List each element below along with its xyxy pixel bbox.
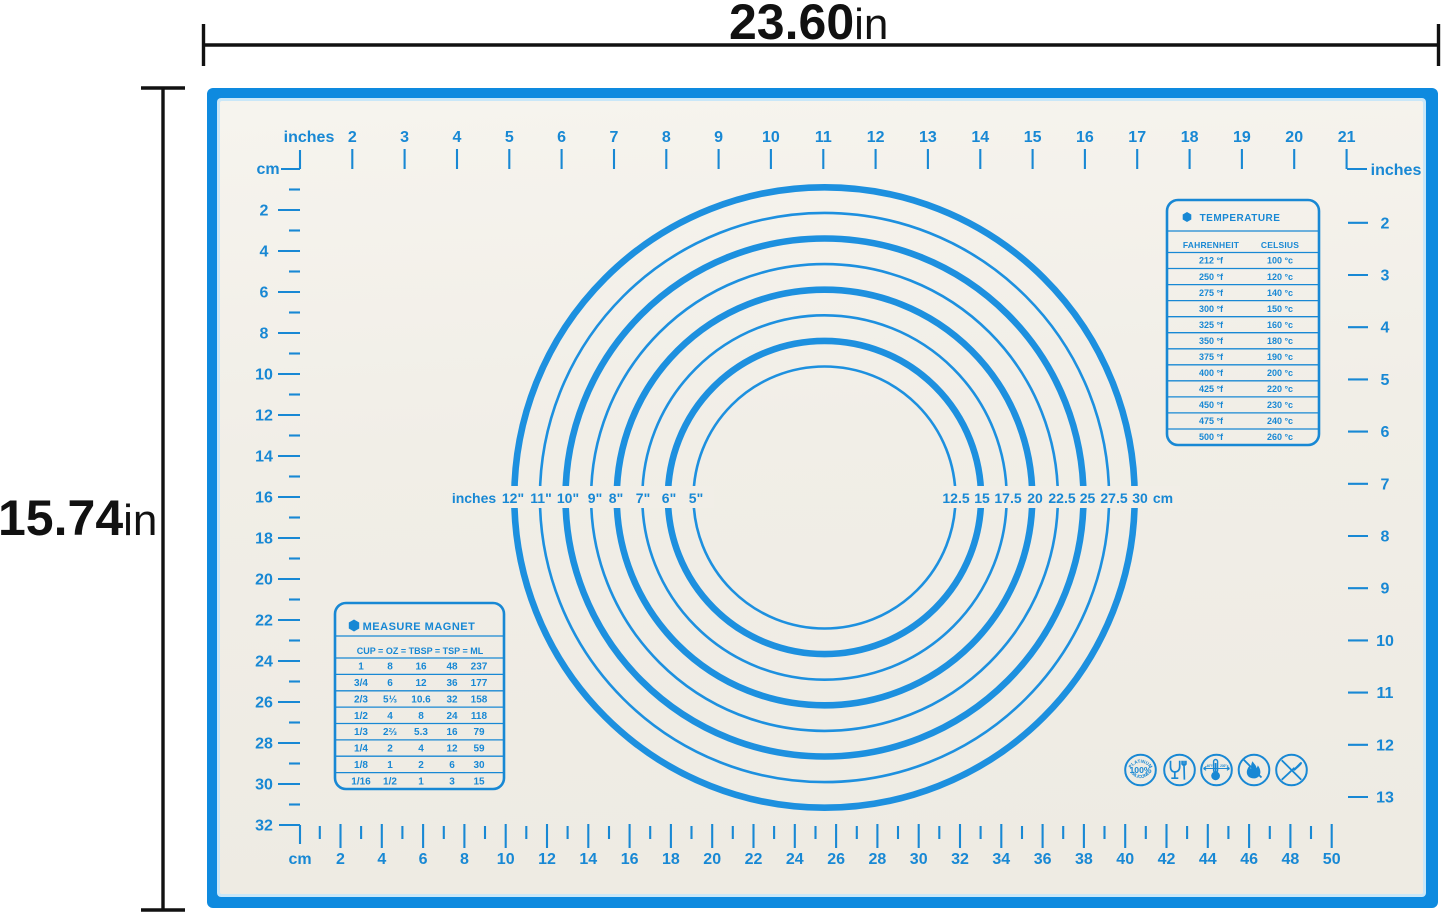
svg-text:20: 20 xyxy=(703,851,721,868)
svg-text:inches: inches xyxy=(284,129,335,146)
svg-text:3: 3 xyxy=(1381,268,1390,285)
svg-text:5⅓: 5⅓ xyxy=(383,694,397,705)
svg-text:30: 30 xyxy=(473,760,485,771)
svg-text:1/16: 1/16 xyxy=(351,776,371,787)
svg-text:275 °f: 275 °f xyxy=(1199,288,1224,298)
svg-text:15.74in: 15.74in xyxy=(0,490,157,546)
svg-text:36: 36 xyxy=(446,678,458,689)
svg-text:16: 16 xyxy=(1076,129,1094,146)
svg-text:12: 12 xyxy=(538,851,556,868)
svg-text:5": 5" xyxy=(689,490,703,506)
svg-text:16: 16 xyxy=(621,851,639,868)
svg-text:inches: inches xyxy=(1371,162,1422,179)
svg-text:10: 10 xyxy=(762,129,780,146)
svg-text:50: 50 xyxy=(1323,851,1341,868)
svg-text:16: 16 xyxy=(446,727,458,738)
svg-text:2: 2 xyxy=(1381,215,1390,232)
svg-text:230°c: 230°c xyxy=(1220,764,1229,768)
svg-text:1/8: 1/8 xyxy=(354,760,368,771)
svg-text:38: 38 xyxy=(1075,851,1093,868)
svg-text:140 °c: 140 °c xyxy=(1267,288,1293,298)
svg-text:21: 21 xyxy=(1338,129,1356,146)
svg-text:250 °f: 250 °f xyxy=(1199,272,1224,282)
svg-text:9": 9" xyxy=(588,490,602,506)
svg-text:28: 28 xyxy=(869,851,887,868)
svg-text:450 °f: 450 °f xyxy=(1199,400,1224,410)
svg-text:1/4: 1/4 xyxy=(354,744,368,755)
svg-text:240 °c: 240 °c xyxy=(1267,416,1293,426)
svg-text:30: 30 xyxy=(910,851,928,868)
svg-text:26: 26 xyxy=(255,695,273,712)
svg-text:6: 6 xyxy=(1381,424,1390,441)
svg-text:11: 11 xyxy=(1377,685,1394,702)
svg-text:24: 24 xyxy=(255,654,273,671)
svg-text:4: 4 xyxy=(387,711,393,722)
svg-text:220 °c: 220 °c xyxy=(1267,384,1293,394)
svg-text:8: 8 xyxy=(460,851,469,868)
svg-text:7: 7 xyxy=(1381,476,1390,493)
svg-text:6: 6 xyxy=(387,678,393,689)
svg-text:3/4: 3/4 xyxy=(354,678,368,689)
svg-text:158: 158 xyxy=(471,694,488,705)
svg-text:6: 6 xyxy=(449,760,455,771)
svg-text:18: 18 xyxy=(1181,129,1199,146)
svg-text:46: 46 xyxy=(1240,851,1258,868)
svg-text:34: 34 xyxy=(992,851,1010,868)
svg-text:16: 16 xyxy=(415,662,427,673)
svg-text:5.3: 5.3 xyxy=(414,727,428,738)
svg-text:2: 2 xyxy=(418,760,424,771)
svg-text:15: 15 xyxy=(974,490,990,506)
svg-text:48: 48 xyxy=(1282,851,1300,868)
svg-text:10": 10" xyxy=(557,490,579,506)
svg-text:44: 44 xyxy=(1199,851,1217,868)
svg-text:30: 30 xyxy=(1132,490,1148,506)
svg-text:11": 11" xyxy=(530,490,551,506)
svg-text:48: 48 xyxy=(446,662,458,673)
svg-text:10.6: 10.6 xyxy=(411,694,431,705)
svg-text:22.5: 22.5 xyxy=(1048,490,1075,506)
svg-text:212 °f: 212 °f xyxy=(1199,256,1224,266)
svg-text:4: 4 xyxy=(260,244,269,261)
svg-text:8: 8 xyxy=(1381,529,1390,546)
svg-text:6": 6" xyxy=(662,490,676,506)
svg-text:177: 177 xyxy=(471,678,488,689)
svg-text:30: 30 xyxy=(255,777,273,794)
svg-text:14: 14 xyxy=(255,449,273,466)
svg-text:59: 59 xyxy=(473,744,485,755)
svg-text:160 °c: 160 °c xyxy=(1267,320,1293,330)
svg-text:20: 20 xyxy=(1027,490,1043,506)
svg-text:300 °f: 300 °f xyxy=(1199,304,1224,314)
svg-text:1/2: 1/2 xyxy=(354,711,368,722)
svg-text:2/3: 2/3 xyxy=(354,694,368,705)
svg-text:350 °f: 350 °f xyxy=(1199,336,1224,346)
svg-text:20: 20 xyxy=(1285,129,1303,146)
svg-text:24: 24 xyxy=(446,711,458,722)
svg-text:3: 3 xyxy=(449,776,455,787)
svg-text:17: 17 xyxy=(1128,129,1146,146)
svg-text:6: 6 xyxy=(557,129,566,146)
svg-text:36: 36 xyxy=(1034,851,1052,868)
svg-text:FAHRENHEIT: FAHRENHEIT xyxy=(1183,240,1240,250)
svg-text:118: 118 xyxy=(471,711,488,722)
svg-text:4: 4 xyxy=(377,851,386,868)
svg-text:4: 4 xyxy=(1381,320,1390,337)
svg-text:4: 4 xyxy=(453,129,462,146)
svg-text:4: 4 xyxy=(418,744,424,755)
svg-text:5: 5 xyxy=(1381,372,1390,389)
svg-text:12": 12" xyxy=(502,490,524,506)
svg-text:475 °f: 475 °f xyxy=(1199,416,1224,426)
svg-text:18: 18 xyxy=(255,531,273,548)
svg-text:3: 3 xyxy=(400,129,409,146)
svg-text:12: 12 xyxy=(867,129,885,146)
svg-text:13: 13 xyxy=(1376,790,1394,807)
svg-text:260 °c: 260 °c xyxy=(1267,432,1293,442)
svg-text:200 °c: 200 °c xyxy=(1267,368,1293,378)
svg-text:6: 6 xyxy=(419,851,428,868)
svg-text:190 °c: 190 °c xyxy=(1267,352,1293,362)
svg-text:230 °c: 230 °c xyxy=(1267,400,1293,410)
svg-text:10: 10 xyxy=(1376,633,1394,650)
svg-text:15: 15 xyxy=(473,776,485,787)
svg-text:CUP = OZ = TBSP = TSP = ML: CUP = OZ = TBSP = TSP = ML xyxy=(357,646,484,656)
svg-text:12: 12 xyxy=(446,744,458,755)
svg-text:16: 16 xyxy=(255,490,273,507)
svg-text:2: 2 xyxy=(387,744,393,755)
svg-text:cm: cm xyxy=(288,851,311,868)
svg-text:26: 26 xyxy=(827,851,845,868)
svg-text:10: 10 xyxy=(255,367,273,384)
svg-text:1: 1 xyxy=(358,662,364,673)
svg-text:1: 1 xyxy=(418,776,424,787)
svg-text:32: 32 xyxy=(255,818,273,835)
svg-text:27.5: 27.5 xyxy=(1100,490,1127,506)
svg-text:19: 19 xyxy=(1233,129,1251,146)
svg-text:cm: cm xyxy=(1153,490,1173,506)
svg-text:11: 11 xyxy=(815,129,832,146)
svg-text:325 °f: 325 °f xyxy=(1199,320,1224,330)
svg-text:14: 14 xyxy=(579,851,597,868)
svg-text:1: 1 xyxy=(387,760,393,771)
svg-text:20: 20 xyxy=(255,572,273,589)
svg-text:2⅔: 2⅔ xyxy=(383,727,397,738)
svg-text:2: 2 xyxy=(336,851,345,868)
svg-text:32: 32 xyxy=(951,851,969,868)
svg-text:5: 5 xyxy=(505,129,514,146)
svg-text:17.5: 17.5 xyxy=(994,490,1021,506)
svg-text:CELSIUS: CELSIUS xyxy=(1261,240,1299,250)
svg-text:32: 32 xyxy=(446,694,458,705)
svg-text:13: 13 xyxy=(919,129,937,146)
svg-text:120 °c: 120 °c xyxy=(1267,272,1293,282)
svg-text:500 °f: 500 °f xyxy=(1199,432,1224,442)
svg-text:180 °c: 180 °c xyxy=(1267,336,1293,346)
svg-text:28: 28 xyxy=(255,736,273,753)
svg-text:40: 40 xyxy=(1116,851,1134,868)
svg-text:MEASURE MAGNET: MEASURE MAGNET xyxy=(363,621,476,633)
svg-text:12: 12 xyxy=(255,408,273,425)
svg-text:150 °c: 150 °c xyxy=(1267,304,1293,314)
svg-text:24: 24 xyxy=(786,851,804,868)
svg-text:1/3: 1/3 xyxy=(354,727,368,738)
svg-text:425 °f: 425 °f xyxy=(1199,384,1224,394)
svg-text:1/2: 1/2 xyxy=(383,776,397,787)
svg-text:15: 15 xyxy=(1024,129,1042,146)
svg-text:8": 8" xyxy=(609,490,623,506)
svg-text:cm: cm xyxy=(256,161,279,178)
svg-text:12: 12 xyxy=(415,678,427,689)
svg-text:25: 25 xyxy=(1080,490,1096,506)
svg-text:22: 22 xyxy=(255,613,273,630)
svg-text:23.60in: 23.60in xyxy=(729,0,888,50)
svg-text:9: 9 xyxy=(1381,581,1390,598)
svg-text:42: 42 xyxy=(1158,851,1176,868)
svg-text:8: 8 xyxy=(387,662,393,673)
svg-text:2: 2 xyxy=(348,129,357,146)
svg-text:237: 237 xyxy=(471,662,488,673)
svg-text:14: 14 xyxy=(971,129,989,146)
svg-text:2: 2 xyxy=(260,203,269,220)
svg-text:18: 18 xyxy=(662,851,680,868)
svg-text:12: 12 xyxy=(1376,737,1394,754)
svg-text:TEMPERATURE: TEMPERATURE xyxy=(1200,213,1281,224)
svg-text:400 °f: 400 °f xyxy=(1199,368,1224,378)
svg-text:8: 8 xyxy=(260,326,269,343)
svg-text:7": 7" xyxy=(636,490,650,506)
svg-text:100 °c: 100 °c xyxy=(1267,256,1293,266)
svg-text:9: 9 xyxy=(714,129,723,146)
svg-text:375 °f: 375 °f xyxy=(1199,352,1224,362)
svg-text:10: 10 xyxy=(497,851,515,868)
svg-text:22: 22 xyxy=(745,851,763,868)
svg-text:7: 7 xyxy=(610,129,619,146)
svg-text:12.5: 12.5 xyxy=(942,490,969,506)
svg-text:inches: inches xyxy=(452,490,497,506)
svg-text:6: 6 xyxy=(260,285,269,302)
svg-text:8: 8 xyxy=(662,129,671,146)
svg-text:-40°f: -40°f xyxy=(1206,764,1214,768)
svg-text:8: 8 xyxy=(418,711,424,722)
svg-text:79: 79 xyxy=(473,727,485,738)
